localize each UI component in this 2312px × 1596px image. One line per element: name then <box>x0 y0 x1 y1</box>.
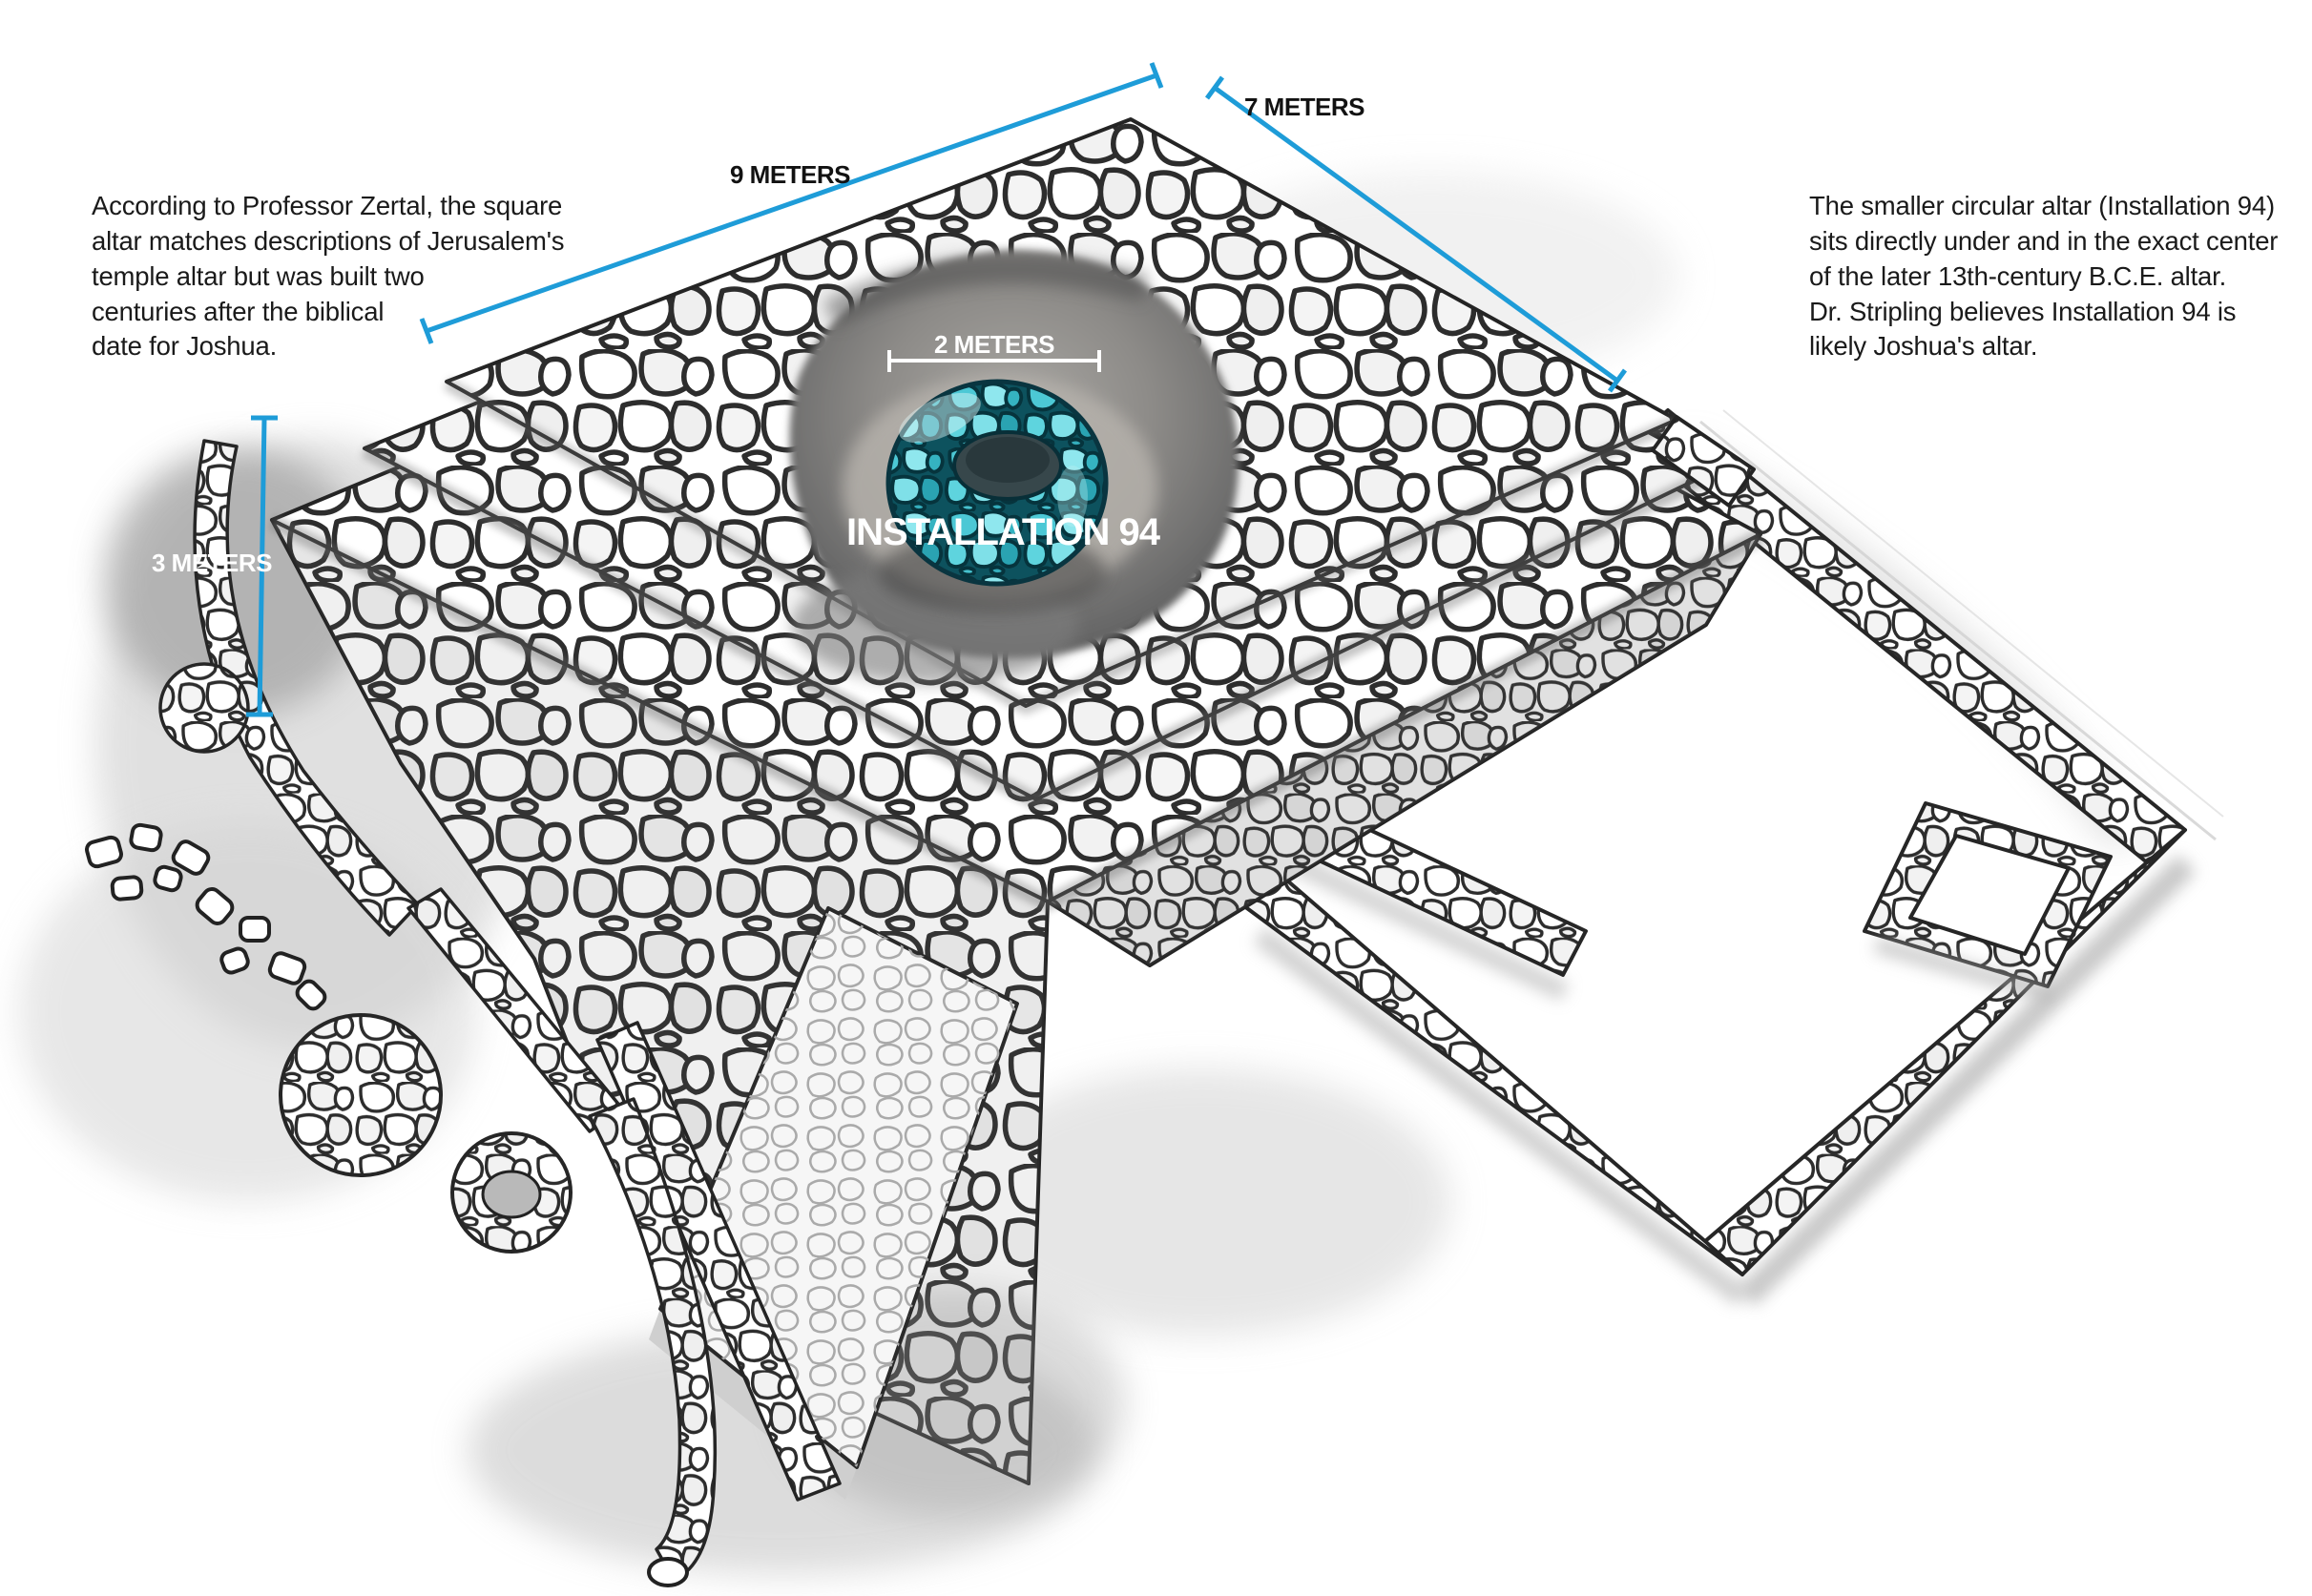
small-stone-ring <box>452 1133 571 1252</box>
caption-square-altar: According to Professor Zertal, the squar… <box>92 189 626 364</box>
stone-platform <box>281 1015 441 1175</box>
dimension-tick <box>1207 77 1222 98</box>
installation-94-ring <box>888 382 1106 584</box>
caption-installation-94: The smaller circular altar (Installation… <box>1809 189 2312 364</box>
label-9-meters: 9 METERS <box>730 160 850 189</box>
label-3-meters: 3 METERS <box>152 549 272 577</box>
label-7-meters: 7 METERS <box>1244 93 1364 121</box>
label-2-meters: 2 METERS <box>934 330 1054 359</box>
label-installation-94: INSTALLATION 94 <box>846 511 1161 553</box>
altar-infographic: 9 METERS 7 METERS 3 METERS 2 METERS INST… <box>0 0 2312 1596</box>
